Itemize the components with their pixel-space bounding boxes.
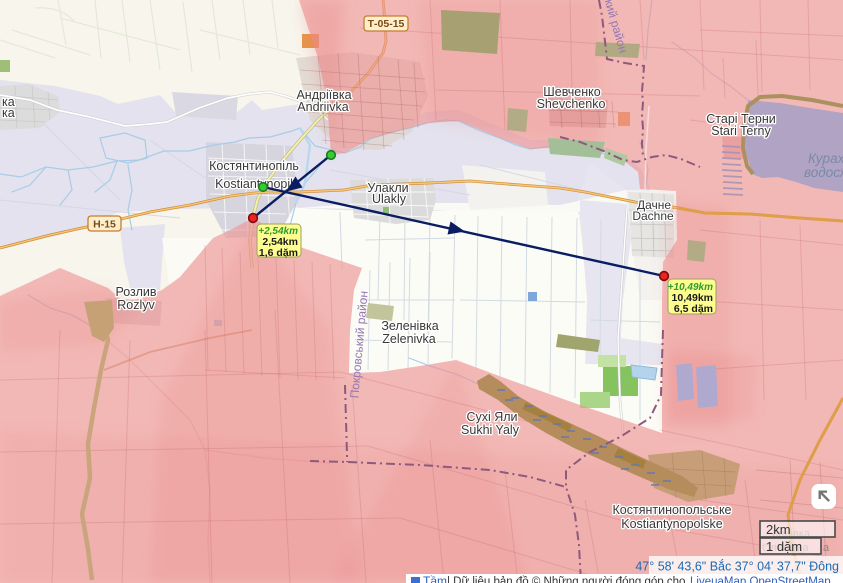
svg-text:Kostiantynopolske: Kostiantynopolske bbox=[621, 517, 723, 531]
svg-text:LiveuaMap OpenStreetMap: LiveuaMap OpenStreetMap bbox=[690, 576, 831, 583]
svg-text:1,6 dặm: 1,6 dặm bbox=[259, 247, 298, 259]
svg-text:a: a bbox=[823, 542, 830, 554]
svg-text:Andriivka: Andriivka bbox=[297, 100, 348, 114]
svg-text:Зеленівка: Зеленівка bbox=[381, 319, 438, 333]
svg-text:Костянтинопольське: Костянтинопольське bbox=[612, 503, 731, 517]
svg-text:47° 58' 43,6" Bắc 37° 04' 37,7: 47° 58' 43,6" Bắc 37° 04' 37,7" Đông bbox=[635, 559, 839, 574]
svg-text:ка: ка bbox=[2, 106, 15, 120]
svg-text:Shevchenko: Shevchenko bbox=[537, 97, 606, 111]
svg-text:Kostiantynopil: Kostiantynopil bbox=[215, 177, 293, 191]
svg-text:Stari Terny: Stari Terny bbox=[711, 124, 771, 138]
svg-text:Zelenivka: Zelenivka bbox=[382, 332, 436, 346]
svg-text:Sukhi Yaly: Sukhi Yaly bbox=[461, 423, 520, 437]
svg-text:Розлив: Розлив bbox=[115, 285, 156, 299]
svg-text:6,5 dặm: 6,5 dặm bbox=[674, 303, 713, 315]
svg-text:Костянтинопіль: Костянтинопіль bbox=[209, 159, 299, 173]
svg-text:| Dữ liệu bản đồ © Những người: | Dữ liệu bản đồ © Những người đóng góp … bbox=[447, 576, 685, 583]
svg-text:Tầm: Tầm bbox=[423, 574, 447, 583]
svg-text:Rozlyv: Rozlyv bbox=[117, 298, 155, 312]
svg-text:Т-05-15: Т-05-15 bbox=[368, 18, 405, 30]
svg-text:Н-15: Н-15 bbox=[93, 219, 116, 231]
svg-text:2km: 2km bbox=[766, 522, 791, 537]
svg-text:1 dặm: 1 dặm bbox=[766, 539, 802, 554]
svg-text:Ulakly: Ulakly bbox=[372, 192, 407, 206]
svg-text:Сухі Яли: Сухі Яли bbox=[466, 410, 517, 424]
svg-text:Курахівське: Курахівське bbox=[808, 151, 843, 166]
svg-text:водосховище: водосховище bbox=[804, 165, 843, 180]
svg-text:Dachne: Dachne bbox=[632, 209, 674, 223]
